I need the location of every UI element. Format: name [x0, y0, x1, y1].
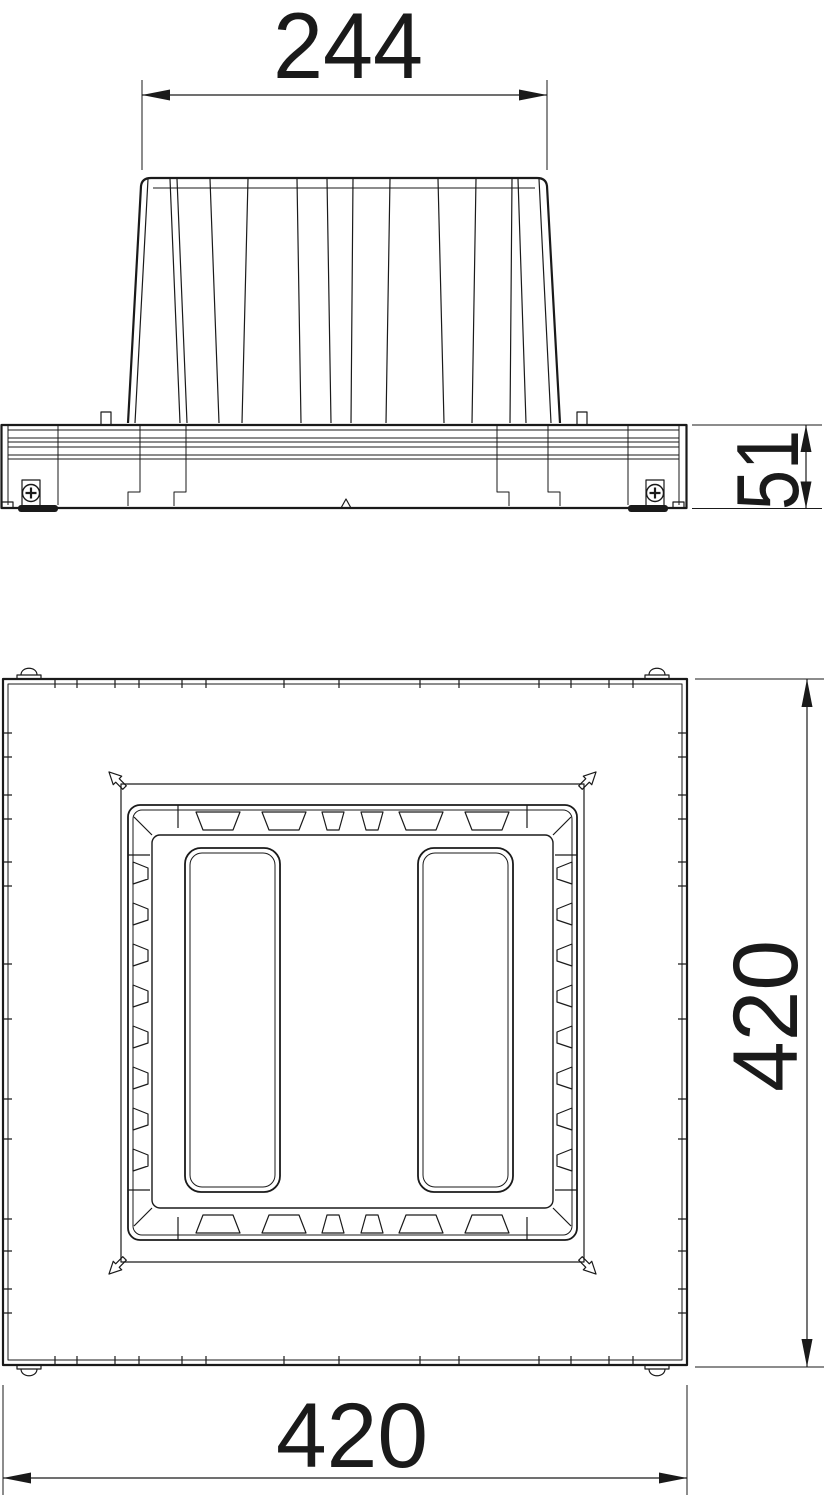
snap-dome-top-left: [17, 668, 41, 679]
slot-inner-line: [423, 853, 508, 1187]
frame-teeth-right: [557, 862, 572, 1171]
dim-arrow-left-icon: [142, 90, 170, 101]
frame-outer-inner-line: [133, 810, 572, 1235]
dim-arrow-left-icon: [3, 1473, 31, 1484]
clip-right: [577, 412, 587, 425]
screw-cross-icon: [26, 488, 37, 499]
slot-outline: [418, 848, 513, 1192]
dim-arrow-right-icon: [659, 1473, 687, 1484]
dimension-plan-width: 420: [3, 1385, 687, 1495]
corner-clip-bottom-right-icon: [576, 1254, 600, 1278]
base-unit: [2, 412, 687, 512]
screw-right: [646, 480, 664, 507]
dim-value-420-vertical: 420: [715, 940, 817, 1092]
dim-arrow-up-icon: [802, 679, 813, 707]
dimension-plan-height: 420: [695, 679, 824, 1367]
cone-outline: [128, 178, 560, 423]
snap-dome-bottom-right: [645, 1365, 669, 1376]
ribbed-cone: [128, 178, 560, 423]
plan-view: 420 420: [3, 668, 824, 1495]
frame-outer-edge: [128, 805, 577, 1240]
frame-teeth-top: [196, 812, 509, 830]
screw-left: [22, 480, 40, 507]
base-outline: [2, 425, 687, 508]
dim-value-244: 244: [273, 0, 423, 98]
frame-teeth-bottom: [196, 1215, 509, 1233]
cone-ribs: [135, 179, 551, 423]
technical-drawing: 244: [0, 0, 826, 1500]
frame-teeth-left: [133, 862, 148, 1171]
dim-value-51: 51: [718, 430, 817, 510]
slot-left: [185, 848, 280, 1192]
frame-inner-edge: [152, 835, 553, 1208]
snap-dome-bottom-left: [17, 1365, 41, 1376]
center-notch: [341, 499, 351, 508]
base-dividers: [8, 425, 679, 506]
foot-left: [18, 505, 58, 512]
snap-dome-top-right: [645, 668, 669, 679]
slot-right: [418, 848, 513, 1192]
foot-right: [628, 505, 668, 512]
slot-outline: [185, 848, 280, 1192]
cover-plate: [105, 768, 601, 1279]
dim-arrow-right-icon: [519, 90, 547, 101]
technical-drawing-page: 244: [0, 0, 826, 1500]
frame-corner-seams: [128, 805, 577, 1240]
dim-value-420-horizontal: 420: [276, 1385, 428, 1487]
dimension-top-width: 244: [142, 0, 547, 170]
dim-arrow-down-icon: [802, 1339, 813, 1367]
corner-clip-top-left-icon: [105, 768, 129, 792]
clip-left: [101, 412, 111, 425]
slot-inner-line: [190, 853, 275, 1187]
mounting-frame: [128, 805, 577, 1240]
screw-cross-icon: [650, 488, 661, 499]
side-view: 244: [2, 0, 823, 512]
corner-clip-bottom-left-icon: [105, 1254, 129, 1278]
corner-clip-top-right-icon: [576, 768, 600, 792]
base-rails: [8, 438, 679, 459]
dimension-base-height: 51: [692, 425, 822, 510]
